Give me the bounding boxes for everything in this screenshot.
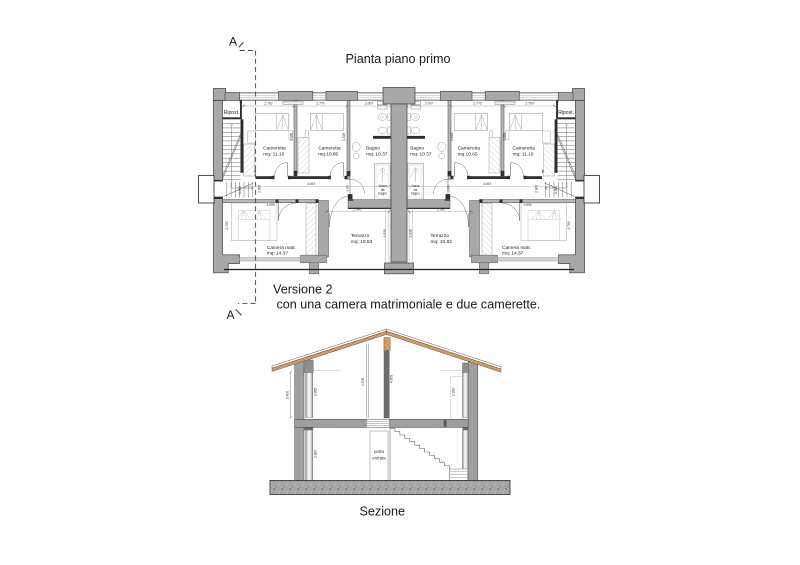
svg-text:2.340: 2.340: [436, 208, 445, 212]
svg-text:3.900: 3.900: [257, 185, 261, 193]
svg-text:3.828: 3.828: [450, 133, 454, 141]
svg-text:mq: 14.37: mq: 14.37: [267, 251, 289, 257]
svg-text:Cameretta: Cameretta: [458, 146, 481, 152]
svg-text:4.063: 4.063: [307, 182, 315, 186]
svg-text:bagno: bagno: [411, 192, 420, 196]
svg-text:1.009: 1.009: [267, 203, 275, 207]
svg-text:mq: 10.37: mq: 10.37: [410, 152, 432, 158]
svg-text:Camera matr.: Camera matr.: [267, 245, 296, 251]
svg-text:2.770: 2.770: [315, 101, 324, 105]
svg-text:Ripost.: Ripost.: [224, 110, 240, 116]
svg-text:Cameretta: Cameretta: [318, 146, 341, 152]
svg-text:Terrazzo: Terrazzo: [431, 233, 450, 239]
svg-text:mq: 10.37: mq: 10.37: [366, 152, 388, 158]
svg-text:mq: 10.83: mq: 10.83: [431, 239, 453, 245]
svg-text:2.865: 2.865: [314, 388, 318, 397]
svg-text:2.952: 2.952: [451, 388, 455, 397]
svg-text:Bagno: Bagno: [366, 146, 380, 152]
svg-text:1.80: 1.80: [447, 185, 451, 192]
svg-text:0.900: 0.900: [238, 186, 242, 194]
svg-text:Versione 2: Versione 2: [273, 283, 333, 297]
svg-text:1.935: 1.935: [409, 229, 413, 237]
svg-text:2.007: 2.007: [424, 101, 433, 105]
svg-text:entrata: entrata: [372, 456, 386, 461]
svg-text:Camera matr.: Camera matr.: [502, 245, 531, 251]
svg-text:mq: 11.10: mq: 11.10: [263, 152, 284, 158]
svg-text:2.770: 2.770: [472, 101, 481, 105]
svg-text:3.900: 3.900: [535, 185, 539, 193]
svg-text:1.935: 1.935: [383, 229, 387, 237]
svg-text:Cameretta: Cameretta: [263, 146, 286, 152]
svg-text:con una camera matrimoniale e: con una camera matrimoniale e due camere…: [277, 298, 541, 312]
svg-text:2.762: 2.762: [263, 101, 272, 105]
svg-text:1.80: 1.80: [345, 185, 349, 192]
svg-text:2.340: 2.340: [352, 208, 361, 212]
svg-text:4.063: 4.063: [483, 182, 491, 186]
svg-text:Terrazzo: Terrazzo: [351, 233, 370, 239]
svg-text:2.703: 2.703: [524, 101, 533, 105]
svg-text:Sezione: Sezione: [360, 505, 406, 519]
svg-text:Cameretta: Cameretta: [513, 146, 536, 152]
svg-text:A: A: [227, 308, 235, 322]
svg-text:2.838: 2.838: [361, 378, 365, 387]
svg-text:bagno: bagno: [378, 192, 387, 196]
svg-text:1.009: 1.009: [523, 203, 531, 207]
svg-text:3.828: 3.828: [290, 133, 294, 141]
svg-text:3.828: 3.828: [342, 133, 346, 141]
svg-text:3.828: 3.828: [502, 133, 506, 141]
svg-text:porta: porta: [374, 449, 384, 454]
svg-text:Ripost.: Ripost.: [558, 110, 574, 116]
svg-text:2.780: 2.780: [567, 221, 571, 230]
svg-text:0.900: 0.900: [554, 186, 558, 194]
svg-text:mq:10.65: mq:10.65: [318, 152, 338, 158]
svg-text:mq: 11.10: mq: 11.10: [513, 152, 534, 158]
svg-text:mq:10.65: mq:10.65: [458, 152, 478, 158]
svg-text:Bagno: Bagno: [410, 146, 424, 152]
svg-text:mq: 14.37: mq: 14.37: [502, 251, 524, 257]
svg-text:2.800: 2.800: [314, 450, 318, 459]
svg-text:2.400: 2.400: [285, 391, 289, 400]
svg-text:A: A: [229, 35, 237, 49]
svg-text:2.007: 2.007: [364, 101, 373, 105]
svg-text:Pianta piano primo: Pianta piano primo: [346, 52, 451, 66]
svg-text:2.780: 2.780: [225, 221, 229, 230]
svg-text:4.905: 4.905: [390, 375, 394, 383]
svg-text:mq: 10.83: mq: 10.83: [351, 239, 373, 245]
